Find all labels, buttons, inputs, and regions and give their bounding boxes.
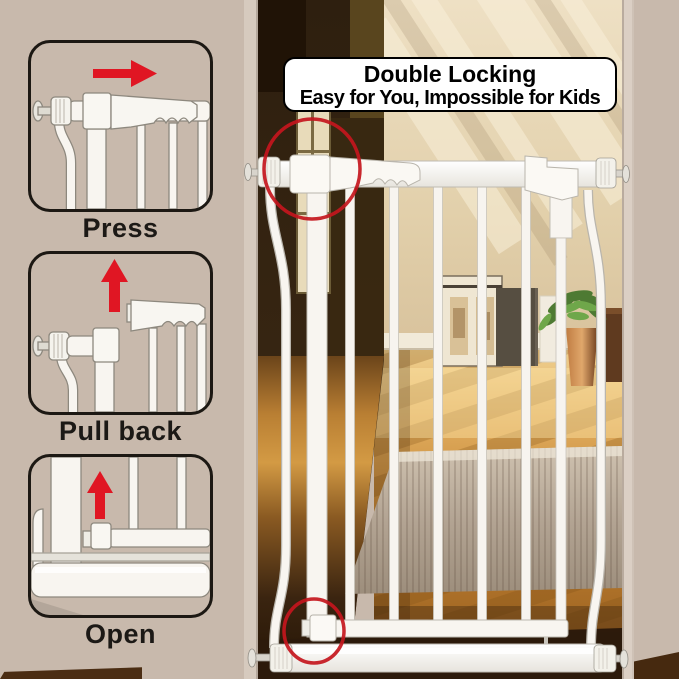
title-box: Double Locking Easy for You, Impossible … (283, 57, 617, 112)
lifted-handle-drawing (33, 300, 206, 412)
floor-shadow-bottom-right (634, 652, 679, 679)
floor-shadow-bottom-left (0, 666, 142, 679)
press-diagram (31, 43, 210, 209)
pull-back-diagram (31, 254, 210, 412)
red-arrow-up-icon (101, 259, 128, 312)
door-frame-left (244, 0, 258, 679)
gate-photo: Double Locking Easy for You, Impossible … (244, 0, 634, 679)
bottom-latch-drawing (31, 457, 210, 615)
product-image: Press (0, 0, 679, 679)
instruction-panel-pull-back (28, 251, 213, 415)
gate-handle-drawing (33, 93, 210, 209)
instruction-panel-press (28, 40, 213, 212)
title-line-2: Easy for You, Impossible for Kids (285, 87, 615, 110)
lock-block (290, 155, 330, 193)
gate-bottom-crossbar (308, 620, 568, 637)
title-line-1: Double Locking (285, 61, 615, 87)
bottom-latch (310, 615, 336, 641)
open-label: Open (28, 619, 213, 650)
pull-back-label: Pull back (28, 416, 213, 447)
framed-picture (440, 276, 502, 366)
hinge-stile (307, 187, 327, 637)
red-arrow-up-icon (87, 471, 113, 519)
dark-cabinet (496, 288, 538, 366)
open-diagram (31, 457, 210, 615)
door-frame-right (622, 0, 634, 679)
instruction-panel-open (28, 454, 213, 618)
red-arrow-right-icon (93, 60, 157, 87)
press-label: Press (28, 213, 213, 244)
